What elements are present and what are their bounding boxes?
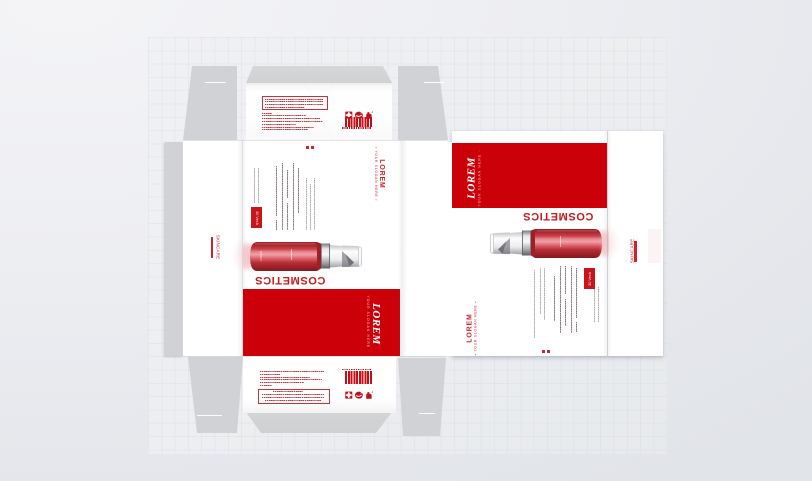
svg-text:LOREM: LOREM (259, 250, 263, 261)
